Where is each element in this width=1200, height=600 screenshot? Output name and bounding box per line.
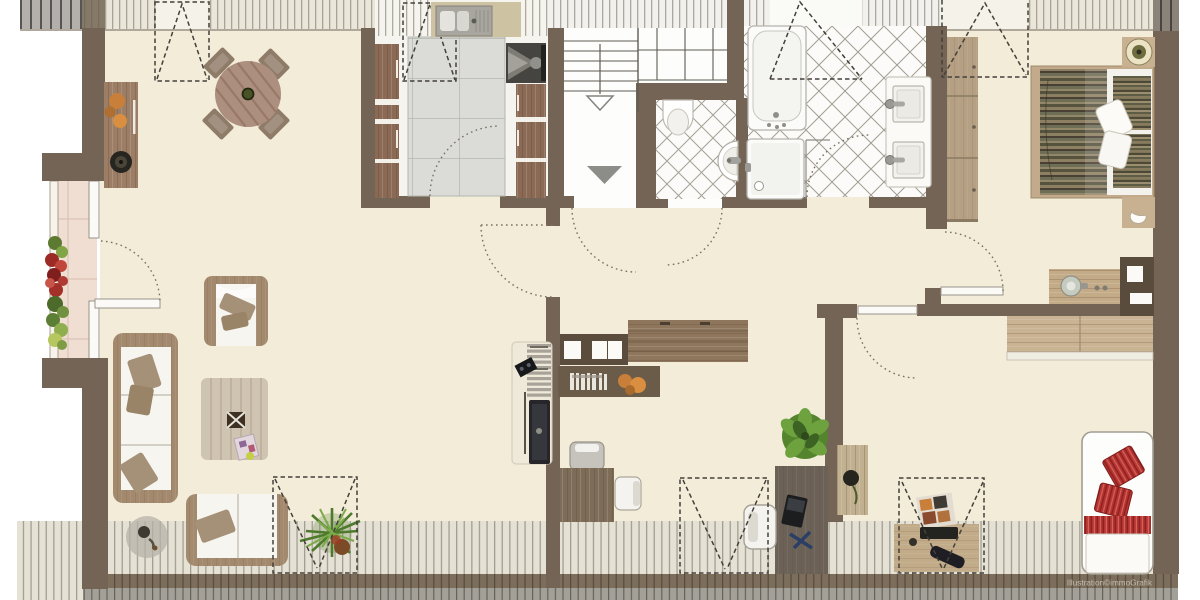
svg-text:Illustration©immoGrafik: Illustration©immoGrafik	[1067, 579, 1153, 588]
